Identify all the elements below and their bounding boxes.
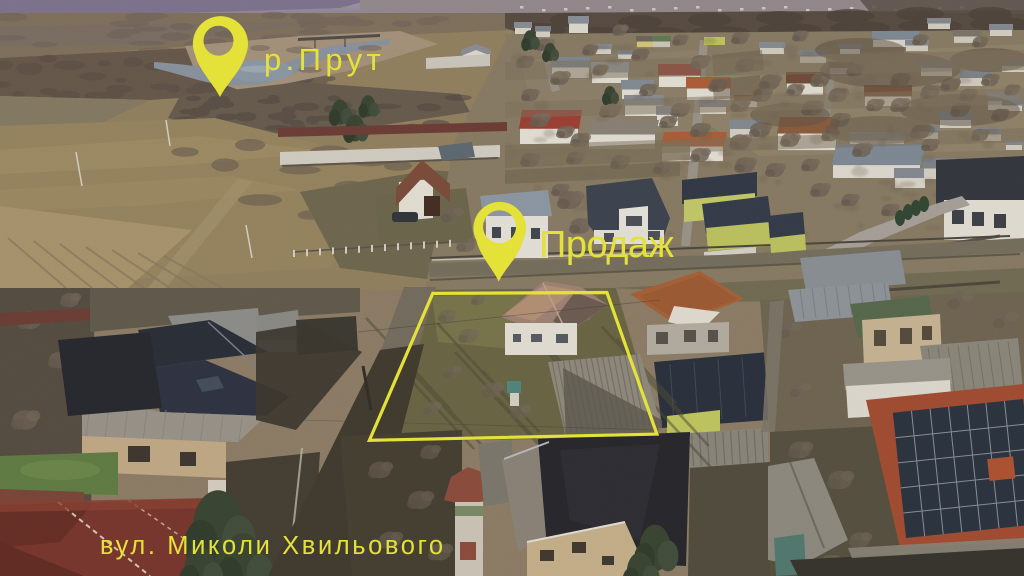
svg-text:вул. Миколи Хвильового: вул. Миколи Хвильового: [100, 532, 446, 560]
svg-text:р.Прут: р.Прут: [264, 42, 385, 77]
svg-text:Продаж: Продаж: [539, 224, 675, 266]
